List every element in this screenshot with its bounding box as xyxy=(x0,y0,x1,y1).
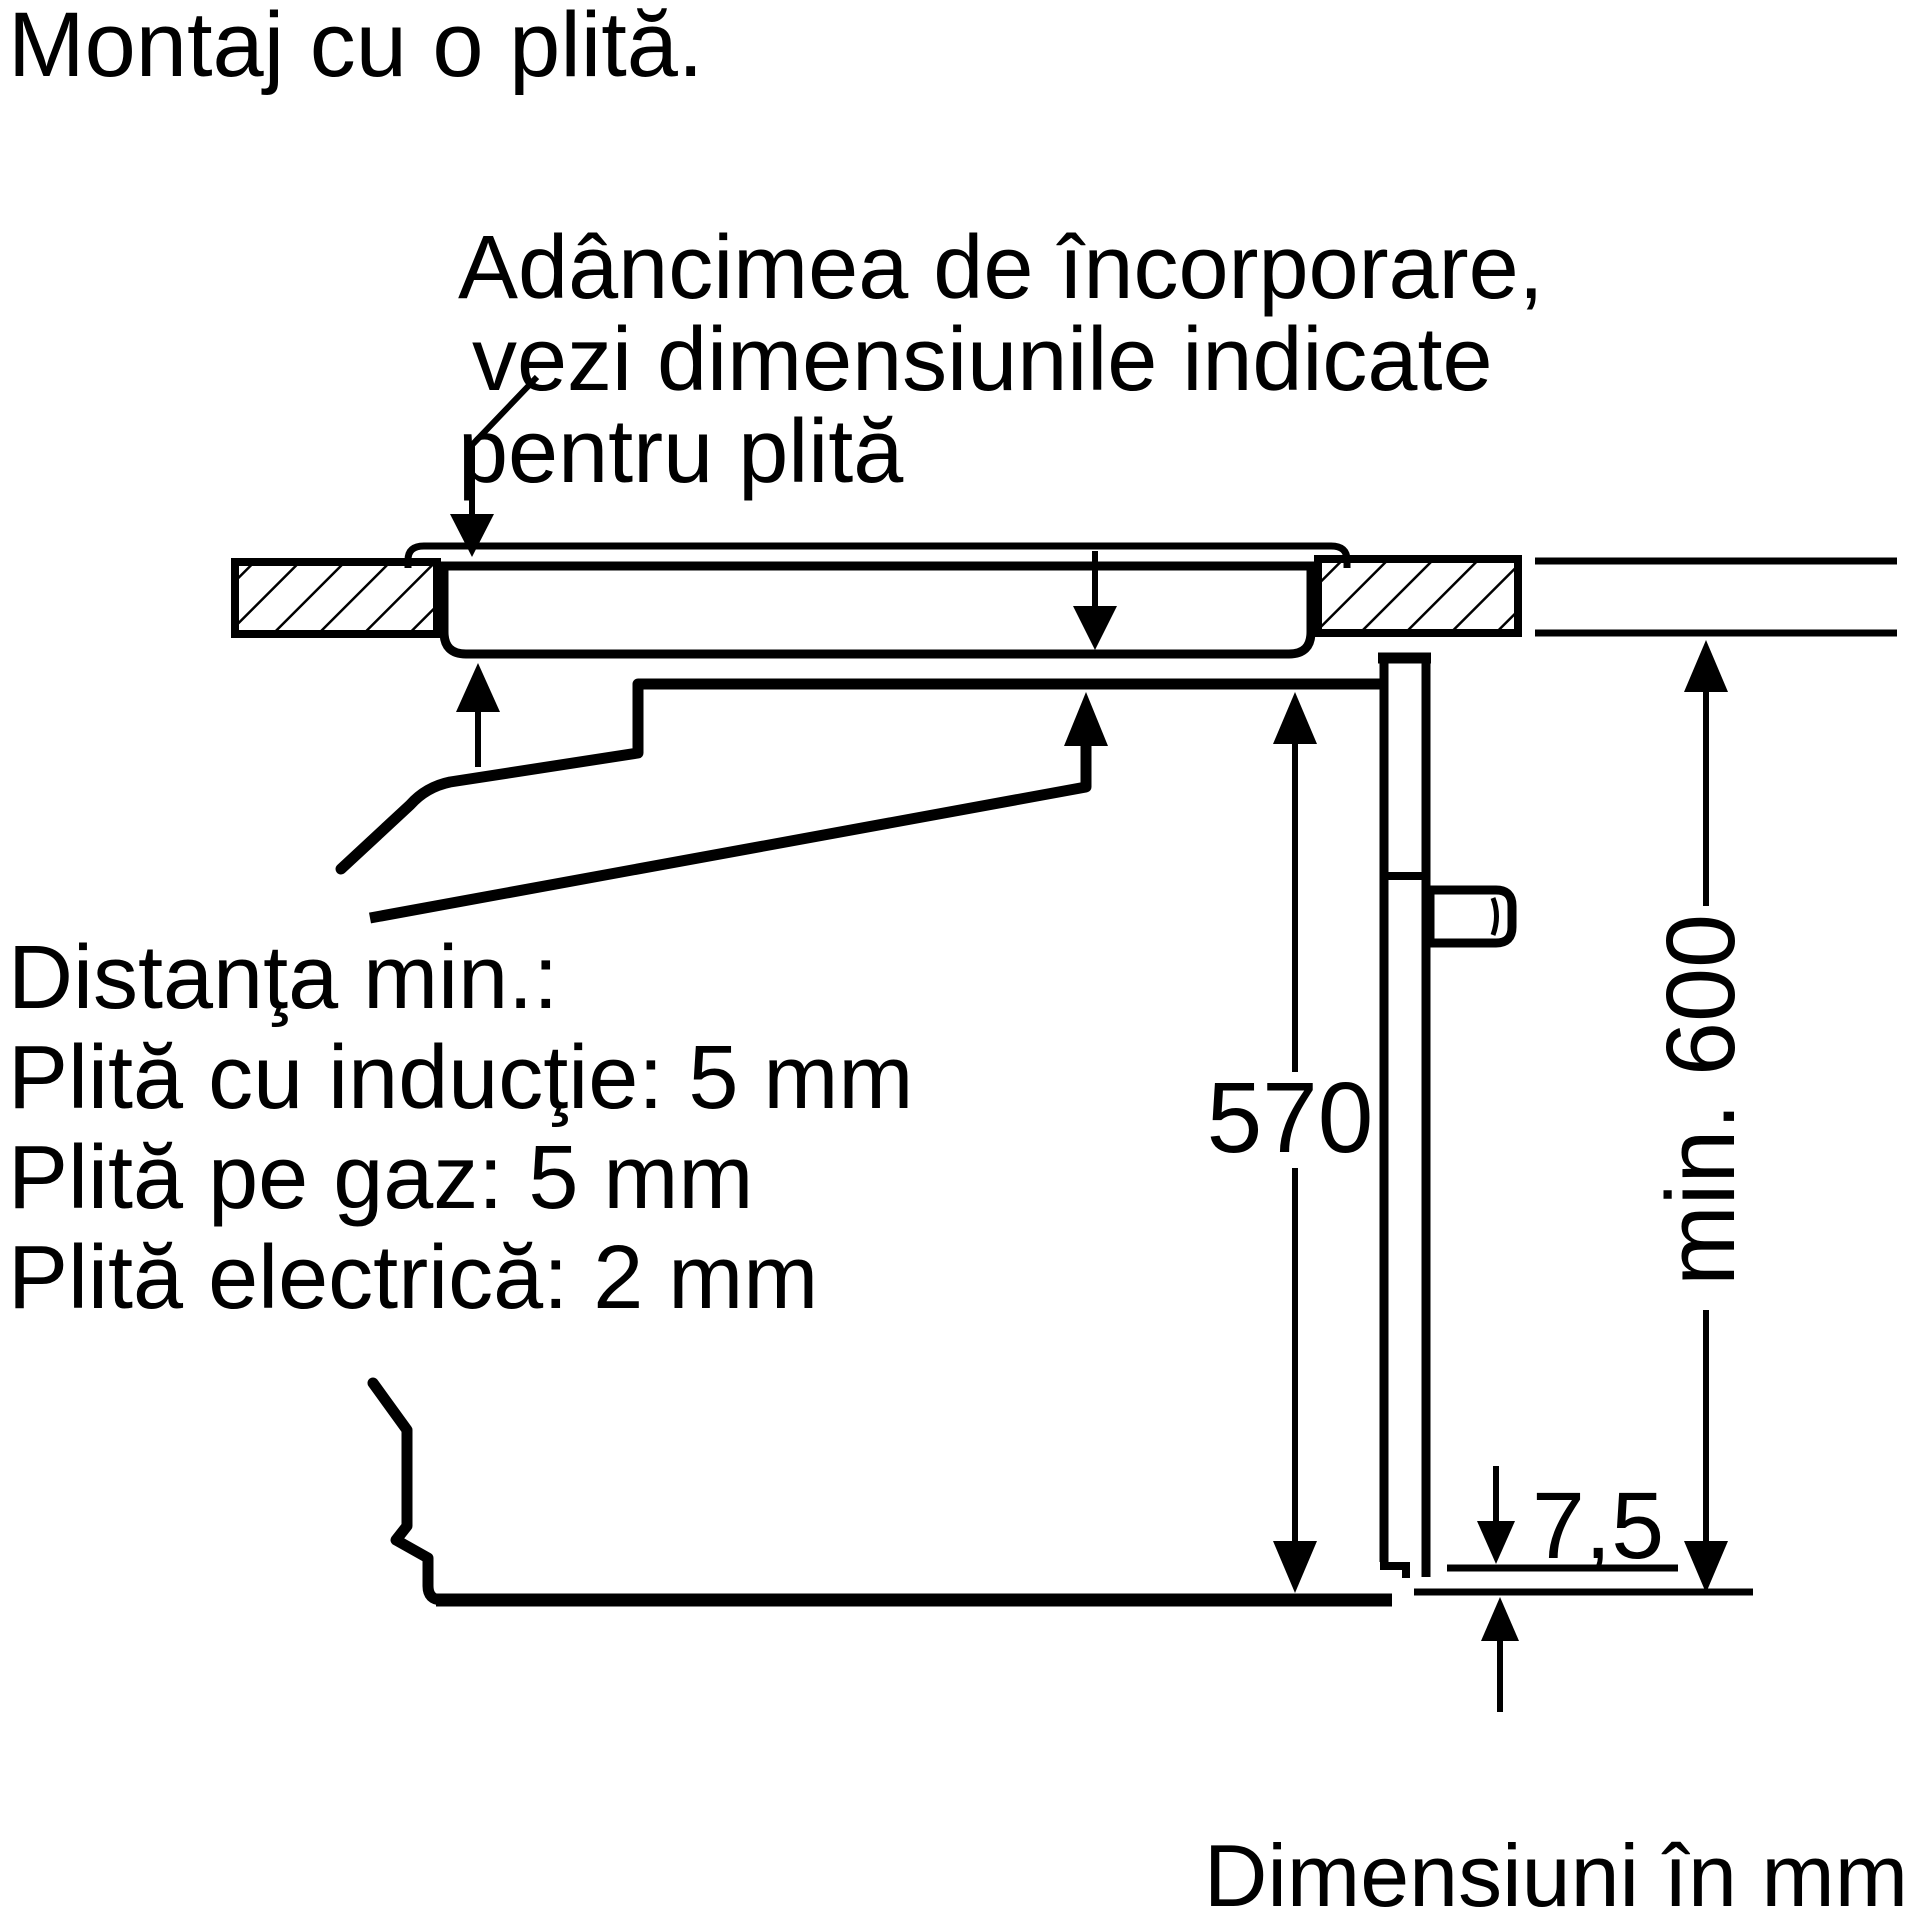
oven-installation-diagram: Montaj cu o plită. Adâncimea de încorpor… xyxy=(0,0,1920,1920)
clearance-line3: Plită pe gaz: 5 mm xyxy=(8,1128,753,1228)
clearance-line4: Plită electrică: 2 mm xyxy=(8,1228,818,1328)
depth-callout-line1: Adâncimea de încorporare, xyxy=(458,218,1544,318)
clearance-line2: Plită cu inducţie: 5 mm xyxy=(8,1028,913,1128)
depth-callout-line3: pentru plită xyxy=(458,402,904,502)
worktop-right-section xyxy=(1318,559,1518,633)
clearance-line1: Distanţa min.: xyxy=(8,928,558,1028)
dim-75-label: 7,5 xyxy=(1532,1473,1664,1579)
footer-units-note: Dimensiuni în mm xyxy=(1204,1826,1908,1920)
hob-body-tub xyxy=(444,566,1311,654)
page-title: Montaj cu o plită. xyxy=(8,0,703,96)
control-knob xyxy=(1430,890,1512,943)
dim-570-label: 570 xyxy=(1207,1062,1374,1174)
depth-callout-line2: vezi dimensiunile indicate xyxy=(472,310,1493,410)
dim-600-label: min. 600 xyxy=(1646,914,1755,1286)
installation-diagram-page: Montaj cu o plită. Adâncimea de încorpor… xyxy=(0,0,1920,1920)
worktop-left-section xyxy=(235,562,437,634)
